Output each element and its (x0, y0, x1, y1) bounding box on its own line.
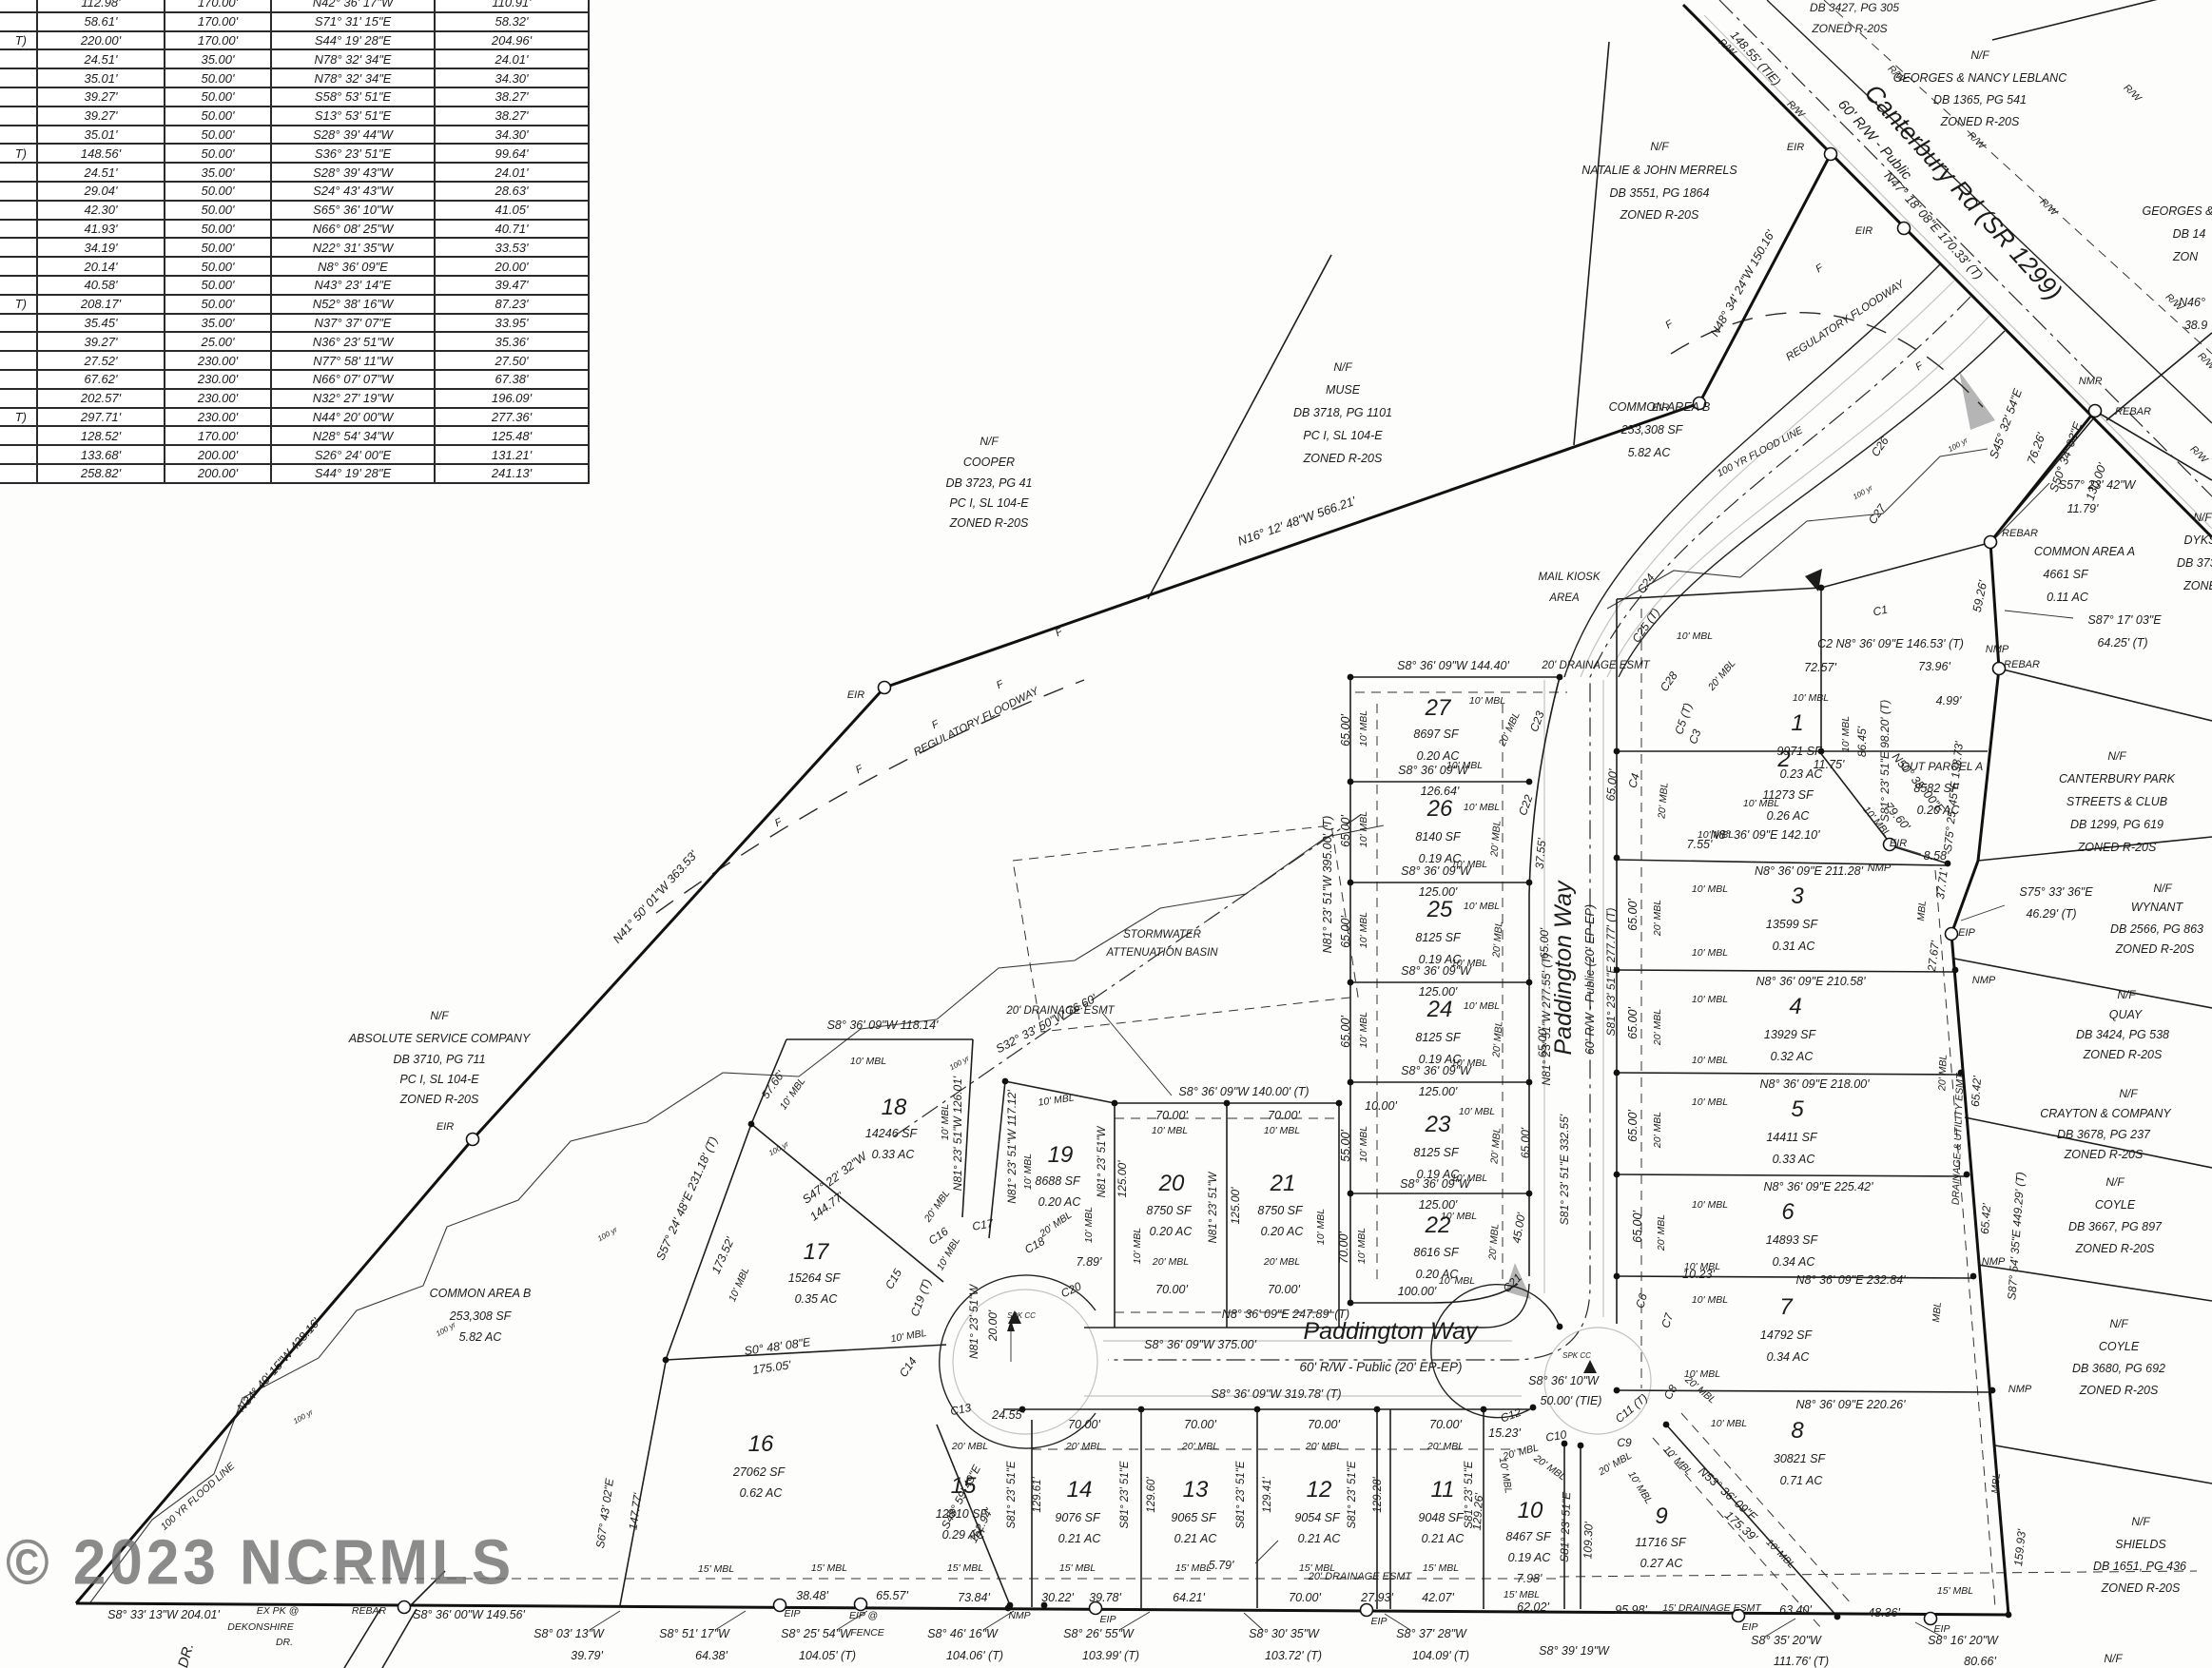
mbl: 10' MBL (1439, 1275, 1475, 1287)
curve-table-row: 24.51'35.00'N78° 32' 34"E24.01' (0, 49, 589, 68)
flood-tick: 100 yr (948, 1054, 971, 1072)
curve-table-cell (0, 12, 37, 31)
dim: 50.00' (TIE) (1541, 1394, 1602, 1407)
dim: S81° 23' 51"E 277.77' (T) (1604, 907, 1618, 1036)
curve-table-cell (0, 351, 37, 370)
floodway-tick: F (1913, 359, 1926, 373)
map-label: 14411 SF (1766, 1131, 1818, 1144)
monument: EX PK @ (257, 1605, 300, 1617)
monument: NMP (1982, 1256, 2006, 1268)
floodway-tick: F (773, 816, 786, 829)
curve-table-cell: 87.23' (435, 295, 589, 314)
lot-corner-dot (1348, 779, 1354, 786)
map-label: ZONED R-20S (2064, 1148, 2144, 1161)
curve-table-cell: 50.00' (165, 87, 271, 107)
dim: 103.72' (T) (1265, 1649, 1322, 1662)
monument: EIR (1787, 142, 1804, 153)
dim: S32° 33' 50"W 76.60' (994, 991, 1099, 1056)
dim: 73.84' (958, 1591, 990, 1604)
lot-corner-dot (1989, 1387, 1996, 1394)
dim: N8° 36' 09"E 211.28' (1755, 864, 1864, 878)
dim: 65.00' (1339, 1016, 1352, 1048)
map-label: ZONED R-20S (1811, 22, 1887, 35)
dim: S8° 36' 09"W (1400, 1177, 1471, 1191)
lot-4-number: 4 (1789, 994, 1801, 1019)
dim: 125.00' (1419, 1085, 1458, 1098)
curve-table-cell: N28° 54' 34"W (271, 426, 435, 445)
curve-table-cell: 25.00' (165, 332, 271, 351)
dim: 109.30' (1581, 1521, 1595, 1559)
dim: 70.00' (1429, 1418, 1462, 1431)
curve-table-row: 27.52'230.00'N77° 58' 11"W27.50' (0, 351, 589, 370)
dim: 65.42' (1969, 1075, 1984, 1107)
curve-table-cell (0, 257, 37, 276)
curve-table: 112.98'170.00'N42° 36' 17"W110.91'58.61'… (0, 0, 590, 484)
curve-table-cell: 35.01' (37, 126, 165, 145)
lot-corner-dot (1614, 1172, 1620, 1178)
mbl: 15' MBL (1504, 1589, 1540, 1600)
map-label: ZONED R-20S (1620, 208, 1699, 222)
dim: S75° 25' 45"E 138.73' (1941, 740, 1966, 852)
map-label: 8750 SF (1146, 1204, 1193, 1217)
curve-table-cell: 39.47' (435, 276, 589, 295)
dim: N81° 23' 51"W (1096, 1125, 1108, 1197)
mbl: 10' MBL (1692, 1199, 1728, 1211)
dim: S81° 23' 51"E (1006, 1461, 1018, 1528)
dim: S8° 36' 09"W 118.14' (827, 1018, 939, 1032)
monument-marker (879, 682, 891, 694)
lot-corner-dot (2006, 1612, 2012, 1619)
rw-tick: R/W (2038, 196, 2061, 219)
dim: 65.57' (876, 1589, 908, 1602)
curve-ref: C27 (1866, 501, 1890, 527)
map-label: 11273 SF (1762, 788, 1814, 802)
dim: S75° 33' 36"E (2019, 885, 2093, 899)
map-label: 13599 SF (1766, 918, 1819, 931)
dim: 111.76' (T) (1774, 1655, 1829, 1668)
mbl: 10' MBL (727, 1266, 752, 1304)
dim: S8° 25' 54"W (781, 1627, 852, 1640)
dim: 70.00' (1155, 1283, 1188, 1296)
map-label: DB 3680, PG 692 (2072, 1362, 2165, 1375)
curve-table-row: 133.68'200.00'S26° 24' 00"E131.21' (0, 445, 589, 464)
dim: N8° 36' 09"E 218.00' (1760, 1077, 1871, 1091)
curve-table-cell: 50.00' (165, 238, 271, 257)
map-label: 8467 SF (1505, 1530, 1552, 1543)
mbl: 10' MBL (1132, 1228, 1143, 1264)
dim: S67° 43' 02"E (593, 1477, 616, 1549)
lot-corner-dot (1348, 1300, 1354, 1307)
dim: N81° 23' 51"W 395.00' (T) (1321, 816, 1334, 954)
curve-table-cell: 41.93' (37, 220, 165, 239)
lot-9-number: 9 (1655, 1503, 1667, 1529)
dim: S81° 23' 51"E (1347, 1461, 1358, 1528)
curve-table-cell: 50.00' (165, 257, 271, 276)
curve-ref: C15 (883, 1267, 904, 1291)
curve-ref: C8 (1661, 1383, 1680, 1403)
esmt: DRAINAGE & UTILITY ESMT (1950, 1072, 1967, 1206)
dim: 65.00' (1339, 916, 1352, 948)
dim: N81° 23' 51"W (967, 1283, 980, 1359)
dim: 70.00' (1337, 1232, 1350, 1264)
curve-table-cell: 38.27' (435, 87, 589, 107)
coyle1-parcel: N/F (2105, 1175, 2125, 1189)
rw-tick: R/W (1785, 98, 1808, 121)
curve-table-cell: S28° 39' 44"W (271, 126, 435, 145)
dim: N8° 36' 09"E 210.58' (1756, 975, 1867, 988)
mbl: 10' MBL (1022, 1154, 1034, 1190)
dim: 64.25' (T) (2097, 636, 2147, 650)
lot-corner-dot (1526, 1191, 1533, 1197)
flood-line-label: 100 YR FLOOD LINE (159, 1460, 238, 1533)
mbl: 10' MBL (1793, 692, 1829, 704)
lot-corner-dot (1526, 1079, 1533, 1086)
map-label: GEORGES & NANCY LEBLANC (1893, 71, 2067, 85)
monument: NMP (1972, 975, 1996, 986)
curve-table-cell: 34.30' (435, 126, 589, 145)
dim: N81° 23' 51"W 117.12' (1005, 1090, 1019, 1204)
lot-7-number: 7 (1779, 1294, 1794, 1320)
dim: 10.23' (1682, 1268, 1715, 1281)
curve-table-cell: 35.01' (37, 68, 165, 87)
curve-table-cell: 277.36' (435, 408, 589, 427)
dim: N81° 23' 51"W 126.01' (951, 1076, 964, 1191)
curve-ref: C14 (897, 1354, 920, 1379)
lot-3-number: 3 (1791, 883, 1804, 909)
dim: N8° 36' 09"E 225.42' (1764, 1180, 1874, 1193)
mbl: 10' MBL (1469, 695, 1505, 707)
curve-table-cell: 24.51' (37, 49, 165, 68)
monument-marker (855, 1599, 867, 1611)
dim: 64.38' (695, 1649, 728, 1662)
lot-corner-dot (1614, 1387, 1620, 1394)
lot-8-number: 8 (1791, 1418, 1804, 1444)
curve-table-cell: 58.61' (37, 12, 165, 31)
dim: 38.9 (2184, 319, 2207, 332)
monument: REBAR (352, 1605, 387, 1617)
map-label: 253,308 SF (1620, 423, 1684, 436)
dim: 70.00' (1155, 1109, 1188, 1122)
dim: 46.29' (T) (2026, 907, 2076, 921)
map-label: 30821 SF (1774, 1452, 1827, 1465)
watermark: © 2023 NCRMLS (6, 1526, 514, 1600)
mbl: MBL (1989, 1472, 2003, 1494)
paddington-rw-v: 60' R/W - Public (20' EP-EP) (1583, 904, 1597, 1055)
mbl: 10' MBL (1358, 710, 1369, 747)
curve-table-row: 39.27'50.00'S13° 53' 51"E38.27' (0, 107, 589, 126)
map-label: ATTENUATION BASIN (1105, 947, 1218, 959)
curve-ref: C28 (1658, 669, 1680, 693)
dim: 11.75' (1814, 758, 1845, 771)
curve-table-cell: N36° 23' 51"W (271, 332, 435, 351)
dim: S8° 36' 09"W 144.40' (1397, 659, 1509, 672)
curve-table-cell: 208.17' (37, 295, 165, 314)
curve-ref: C19 (T) (908, 1277, 934, 1318)
dim: 70.00' (1289, 1591, 1321, 1604)
map-label: 0.20 AC (1150, 1225, 1193, 1238)
dim: S8° 36' 00"W 149.56' (413, 1608, 525, 1621)
map-label: 0.62 AC (740, 1486, 784, 1500)
dim: S8° 36' 09"W 319.78' (T) (1211, 1387, 1341, 1401)
dim: 37.71' (1933, 867, 1950, 900)
mbl: 10' MBL (1692, 994, 1728, 1005)
map-label: ZONED R-20S (949, 516, 1029, 530)
curve-table-cell: N78° 32' 34"E (271, 49, 435, 68)
dim: 125.00' (1229, 1187, 1242, 1225)
map-label: 5.82 AC (1628, 446, 1672, 459)
dim: S8° 36' 10"W (1528, 1374, 1600, 1387)
curve-table-cell: 241.13' (435, 464, 589, 483)
dim: 104.09' (T) (1412, 1649, 1469, 1662)
curve-table-cell: S13° 53' 51"E (271, 107, 435, 126)
dim: 38.48' (796, 1589, 828, 1602)
dim: S87° 17' 03"E (2087, 613, 2162, 627)
map-label: 0.19 AC (1508, 1551, 1552, 1564)
dim: 65.00' (1631, 1211, 1644, 1243)
curve-ref: C12 (1499, 1406, 1523, 1426)
curve-table-row: 29.04'50.00'S24° 43' 43"W28.63' (0, 182, 589, 201)
curve-ref: C11 (T) (1613, 1391, 1650, 1426)
curve-table-row: 67.62'230.00'N66° 07' 07"W67.38' (0, 370, 589, 389)
mbl: 20' MBL (1488, 820, 1503, 858)
rw-tick: R/W (2122, 82, 2144, 105)
monument-marker (1825, 148, 1837, 161)
mbl: 10' MBL (1840, 716, 1852, 752)
lot-corner-dot (1336, 1100, 1343, 1107)
curve-table-cell: 41.05' (435, 201, 589, 220)
curve-table-row: 202.57'230.00'N32° 27' 19"W196.09' (0, 389, 589, 408)
lot-corner-dot (1526, 880, 1533, 886)
monument: EIP (785, 1608, 801, 1620)
curve-ref: C24 (1635, 571, 1658, 595)
curve-table-row: 35.45'35.00'N37° 37' 07"E33.95' (0, 314, 589, 333)
mbl: MBL (1931, 1301, 1944, 1323)
map-label: 8697 SF (1413, 727, 1460, 741)
common-area-b: COMMON AREA B (1609, 400, 1711, 414)
lot-18-number: 18 (882, 1095, 907, 1120)
curve-table-row: 24.51'35.00'S28° 39' 43"W24.01' (0, 163, 589, 182)
lot-corner-dot (1374, 1406, 1381, 1413)
map-label: COYLE (2099, 1340, 2140, 1353)
merrels-parcel: N/F (1650, 140, 1669, 153)
rw-tick: R/W (2188, 443, 2211, 466)
flood-tick: 100 yr (767, 1139, 790, 1157)
map-label: 15264 SF (788, 1271, 842, 1285)
curve-table-cell: 297.71' (37, 408, 165, 427)
mbl: 10' MBL (1152, 1125, 1188, 1136)
lot-corner-dot (1818, 585, 1825, 592)
curve-table-row: 58.61'170.00'S71° 31' 15"E58.32' (0, 12, 589, 31)
map-label: 14246 SF (865, 1127, 919, 1140)
curve-table-cell (0, 370, 37, 389)
lot-20-number: 20 (1158, 1171, 1185, 1196)
curve-table-cell: 258.82' (37, 464, 165, 483)
map-label: ZONED R-20S (1940, 115, 2020, 128)
mbl: 20' MBL (1181, 1441, 1218, 1452)
spk-point: SPK CC (1007, 1311, 1036, 1320)
leader-lines (590, 483, 2073, 1637)
curve-table-cell: 34.30' (435, 68, 589, 87)
lot-21-number: 21 (1270, 1171, 1296, 1196)
map-label: ZONED R-20S (2115, 942, 2195, 956)
map-label: 0.34 AC (1767, 1350, 1811, 1364)
dim: 103.99' (T) (1082, 1649, 1139, 1662)
map-label: 27062 SF (732, 1465, 786, 1479)
curve-table-cell: 230.00' (165, 370, 271, 389)
rw-tick: R/W (1966, 129, 1989, 152)
dim: 86.45' (1855, 726, 1869, 757)
dim: S8° 16' 20"W (1928, 1634, 1999, 1647)
dim: S8° 36' 09"W 375.00' (1144, 1338, 1256, 1351)
rw-tick: R/W (2163, 291, 2186, 314)
monument: NMP (1868, 863, 1892, 874)
map-label: 8125 SF (1413, 1146, 1460, 1159)
map-label: 8125 SF (1415, 931, 1462, 944)
dim: 24.55' (991, 1408, 1024, 1422)
lot-corner-dot (1348, 979, 1354, 986)
map-label: 0.35 AC (795, 1292, 839, 1306)
dim: S45° 32' 54"E (1987, 386, 2025, 460)
cooper-parcel: N/F (980, 435, 999, 448)
dim: 48.36' (1868, 1606, 1900, 1620)
dim: 159.93' (2011, 1528, 2028, 1567)
curve-table-cell: T) (0, 144, 37, 163)
absolute-service-parcel: N/F (430, 1009, 449, 1022)
dim: S57° 23' 42"W (2059, 478, 2137, 492)
curve-table-cell: N37° 37' 07"E (271, 314, 435, 333)
mbl: 10' MBL (1464, 1000, 1500, 1012)
monument: EIR (437, 1121, 454, 1133)
curve-table-row: 35.01'50.00'S28° 39' 44"W34.30' (0, 126, 589, 145)
lot-corner-dot (1481, 1406, 1487, 1413)
dim: N41° 50' 01"W 363.53' (611, 848, 701, 946)
dim: S8° 26' 55"W (1063, 1627, 1135, 1640)
dim: 15.23' (1488, 1426, 1521, 1440)
curve-table-cell (0, 0, 37, 12)
map-label: 8125 SF (1415, 1031, 1462, 1044)
curve-table-cell: N43° 23' 14"E (271, 276, 435, 295)
mbl: 10' MBL (940, 1104, 951, 1140)
esmt: 20' DRAINAGE ESMT (1541, 660, 1650, 671)
mbl: 20' MBL (1652, 900, 1663, 937)
curve-table-cell: 67.38' (435, 370, 589, 389)
mbl: 20' MBL (1656, 1214, 1667, 1251)
map-label: DB 2566, PG 863 (2110, 922, 2203, 936)
map-label: 0.26 AC (1767, 809, 1811, 823)
dim: S8° 36' 09"W (1398, 764, 1469, 777)
mbl: 15' MBL (1423, 1562, 1459, 1574)
mbl: 10' MBL (1083, 1207, 1095, 1243)
lot-corner-dot (1952, 967, 1959, 974)
dim: 65.00' (1626, 1007, 1640, 1039)
map-label: ABSOLUTE SERVICE COMPANY (348, 1032, 532, 1045)
mbl: 10' MBL (1711, 1418, 1747, 1429)
canterbury-rd-name: Canterbury Rd (SR 1299) (1859, 78, 2068, 305)
mbl: 20' MBL (1305, 1441, 1342, 1452)
curve-table-row: 20.14'50.00'N8° 36' 09"E20.00' (0, 257, 589, 276)
mbl: 10' MBL (1356, 1228, 1368, 1264)
mbl: 15' MBL (698, 1563, 734, 1575)
map-label: 14792 SF (1760, 1329, 1814, 1342)
curve-table-cell: 24.01' (435, 163, 589, 182)
map-label: 14893 SF (1766, 1233, 1819, 1247)
curve-ref: C13 (949, 1401, 973, 1418)
dim: S8° 36' 09"W (1401, 864, 1472, 878)
dim: S87° 54' 35"E 449.29' (T) (2005, 1172, 2027, 1301)
curve-table-cell: 24.51' (37, 163, 165, 182)
stormwater-basin: STORMWATER (1123, 929, 1201, 941)
dim: 59.26' (1970, 579, 1990, 613)
map-label: ZONED R-20S (2101, 1581, 2181, 1595)
lot-corner-dot (1614, 1273, 1620, 1280)
map-label: AREA (1548, 592, 1580, 604)
curve-table-cell: 29.04' (37, 182, 165, 201)
curve-table-cell: 27.52' (37, 351, 165, 370)
mbl: 10' MBL (1441, 1211, 1477, 1222)
lot-12-number: 12 (1307, 1477, 1332, 1503)
mbl: 15' MBL (1175, 1562, 1212, 1574)
dim: S81° 23' 51"E (1235, 1461, 1247, 1528)
flood-tick: 100 yr (435, 1320, 457, 1338)
lot-corner-dot (1578, 1443, 1584, 1449)
lot-lines (344, 0, 2212, 1668)
curve-table-cell (0, 276, 37, 295)
curve-ref: C17 (971, 1216, 995, 1233)
dim: N16° 12' 48"W 566.21' (1236, 494, 1358, 549)
curve-table-cell: 24.01' (435, 49, 589, 68)
dim: S8° 36' 09"W (1401, 1064, 1472, 1077)
dim: 64.21' (1173, 1591, 1205, 1604)
map-label: 9054 SF (1294, 1511, 1341, 1524)
curve-table-cell: 35.36' (435, 332, 589, 351)
mbl: 10' MBL (890, 1328, 928, 1345)
mbl: 20' MBL (1426, 1441, 1464, 1452)
dim: S8° 35' 20"W (1751, 1634, 1822, 1647)
mbl: 10' MBL (1692, 883, 1728, 895)
dim: S8° 30' 35"W (1249, 1627, 1320, 1640)
curve-table-cell: N66° 07' 07"W (271, 370, 435, 389)
curve-ref: C6 (1633, 1291, 1650, 1309)
curve-table-cell: 20.00' (435, 257, 589, 276)
curve-table-cell: 67.62' (37, 370, 165, 389)
map-label: DB 3737, (2177, 556, 2212, 570)
curve-table-cell: 196.09' (435, 389, 589, 408)
rw-tick: R/W (2196, 350, 2212, 373)
map-label: PC I, SL 104-E (949, 496, 1029, 510)
dim: N8° 36' 09"E 220.26' (1796, 1398, 1907, 1411)
mbl: 20' MBL (1531, 1452, 1568, 1483)
esmt: 15' DRAINAGE ESMT (1662, 1602, 1762, 1614)
monument: EIP @ (849, 1610, 878, 1621)
map-label: COOPER (963, 456, 1015, 469)
mbl: 20' MBL (1705, 657, 1737, 693)
curve-ref: C22 (1516, 793, 1536, 818)
curve-table-cell: 20.14' (37, 257, 165, 276)
mbl: 10' MBL (1464, 901, 1500, 912)
monument: NMP (2008, 1384, 2032, 1395)
dim: 129.61' (1032, 1477, 1043, 1513)
mbl: 20' MBL (1490, 1020, 1504, 1058)
curve-table-cell: 40.71' (435, 220, 589, 239)
curve-table-cell: S44° 19' 28"E (271, 31, 435, 50)
monument-marker (1898, 223, 1911, 235)
curve-table-cell (0, 87, 37, 107)
curve-table-cell: S24° 43' 43"W (271, 182, 435, 201)
dim: S8° 36' 09"W (1401, 964, 1472, 978)
map-label: ZONED R-20S (2083, 1048, 2163, 1061)
curve-table-cell: 50.00' (165, 276, 271, 295)
dim: 11.79' (2067, 502, 2099, 515)
